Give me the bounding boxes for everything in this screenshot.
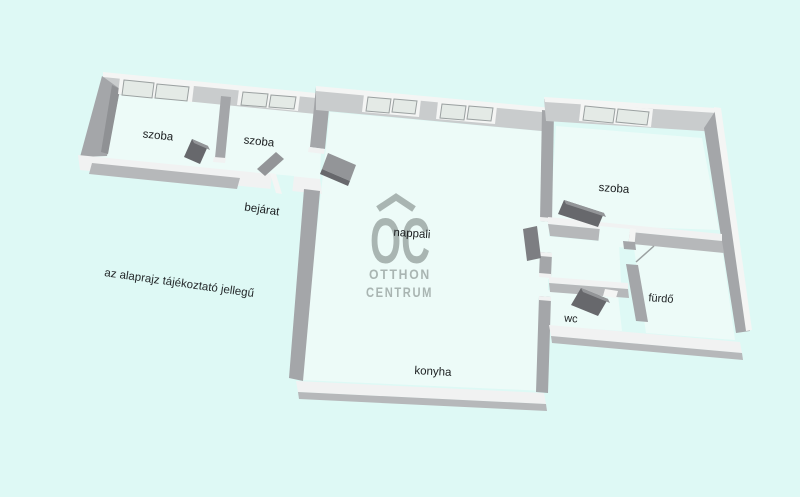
window-icon xyxy=(155,84,189,101)
window-icon xyxy=(269,95,296,109)
window-icon xyxy=(583,106,615,123)
logo-word-otthon: OTTHON xyxy=(369,266,431,282)
wall xyxy=(540,110,554,222)
window-icon xyxy=(440,104,466,120)
window-icon xyxy=(366,97,391,113)
room-label-konyha: konyha xyxy=(414,365,452,379)
wall xyxy=(623,241,636,250)
wall xyxy=(213,157,226,163)
floor-furdo xyxy=(633,241,735,340)
window-icon xyxy=(467,106,493,121)
window-icon xyxy=(392,99,417,114)
window-icon xyxy=(241,92,268,107)
room-label-szoba-right: szoba xyxy=(598,182,630,196)
otthon-centrum-watermark: OC OTTHON CENTRUM xyxy=(366,197,433,300)
window-icon xyxy=(122,80,154,98)
room-label-wc: wc xyxy=(563,312,579,325)
logo-word-centrum: CENTRUM xyxy=(366,284,433,300)
floorplan-stage: OC OTTHON CENTRUM szoba szoba bejárat na… xyxy=(0,0,800,497)
window-icon xyxy=(616,109,649,125)
floorplan-canvas: OC OTTHON CENTRUM szoba szoba bejárat na… xyxy=(0,0,800,497)
room-label-furdo: fürdő xyxy=(648,292,674,306)
